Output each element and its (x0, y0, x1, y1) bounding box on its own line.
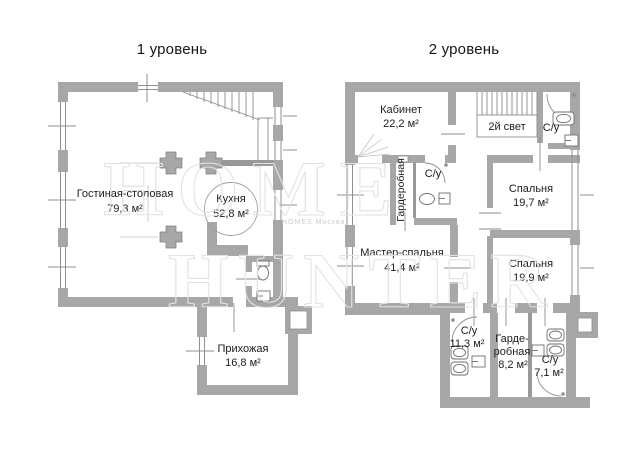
level1-furniture-lines (120, 163, 158, 237)
svg-text:19,7 м²: 19,7 м² (513, 197, 549, 209)
svg-text:52,8 м²: 52,8 м² (213, 208, 249, 220)
room-label-bedroom2: Спальня 19,9 м² (509, 258, 553, 284)
toilet-tank-icon (257, 261, 269, 266)
room-label-cabinet: Кабинет 22,2 м² (380, 104, 422, 130)
svg-text:робная: робная (494, 346, 531, 358)
svg-text:16,8 м²: 16,8 м² (225, 357, 261, 369)
room-label-wardrobe-82: Гарде- робная 8,2 м² (494, 333, 531, 371)
level1-wc-fixtures (257, 261, 270, 301)
level2-niche (578, 318, 592, 332)
svg-text:Гостиная-столовая: Гостиная-столовая (77, 188, 174, 200)
room-label-wc-mid: С/у (425, 168, 442, 180)
room-label-bedroom1: Спальня 19,7 м² (509, 183, 553, 209)
svg-text:Кухня: Кухня (216, 193, 245, 205)
level1-walls (58, 82, 312, 395)
svg-text:Спальня: Спальня (509, 183, 553, 195)
toilet-bowl-icon (258, 266, 269, 280)
svg-text:22,2 м²: 22,2 м² (383, 118, 419, 130)
room-label-wardrobe-mid: Гардеробная (395, 158, 407, 222)
floorplan-svg: Гостиная-столовая 79,3 м² Кухня 52,8 м² … (0, 0, 644, 455)
svg-text:Спальня: Спальня (509, 258, 553, 270)
svg-text:С/у: С/у (542, 354, 559, 366)
svg-text:Мастер-спальня: Мастер-спальня (360, 247, 444, 259)
room-label-kitchen: Кухня 52,8 м² (213, 193, 249, 220)
svg-text:8,2 м²: 8,2 м² (498, 359, 528, 371)
svg-text:Прихожая: Прихожая (218, 343, 269, 355)
floorplan-canvas: 1 уровень 2 уровень (0, 0, 644, 455)
room-label-second-light: 2й свет (488, 121, 525, 133)
room-label-master: Мастер-спальня 41,4 м² (360, 247, 444, 274)
room-label-wc-top: С/у (543, 122, 560, 134)
room-label-living: Гостиная-столовая 79,3 м² (77, 188, 174, 215)
svg-text:Кабинет: Кабинет (380, 104, 422, 116)
toilet-bowl-icon (420, 194, 435, 205)
level2-walls (345, 82, 598, 408)
svg-text:С/у: С/у (461, 325, 478, 337)
room-label-hallway: Прихожая 16,8 м² (218, 343, 269, 369)
svg-text:Гарде-: Гарде- (495, 333, 529, 345)
svg-text:41,4 м²: 41,4 м² (384, 262, 420, 274)
svg-text:7,1 м²: 7,1 м² (534, 367, 564, 379)
svg-text:11,3 м²: 11,3 м² (450, 338, 485, 350)
svg-text:79,3 м²: 79,3 м² (107, 203, 143, 215)
room-label-wc-71: С/у 7,1 м² (534, 354, 564, 379)
entrance-niche (290, 311, 307, 329)
svg-text:19,9 м²: 19,9 м² (513, 272, 549, 284)
level2-windows (337, 150, 594, 295)
room-label-wc-113: С/у 11,3 м² (450, 325, 485, 350)
level1-stairs (183, 92, 273, 160)
